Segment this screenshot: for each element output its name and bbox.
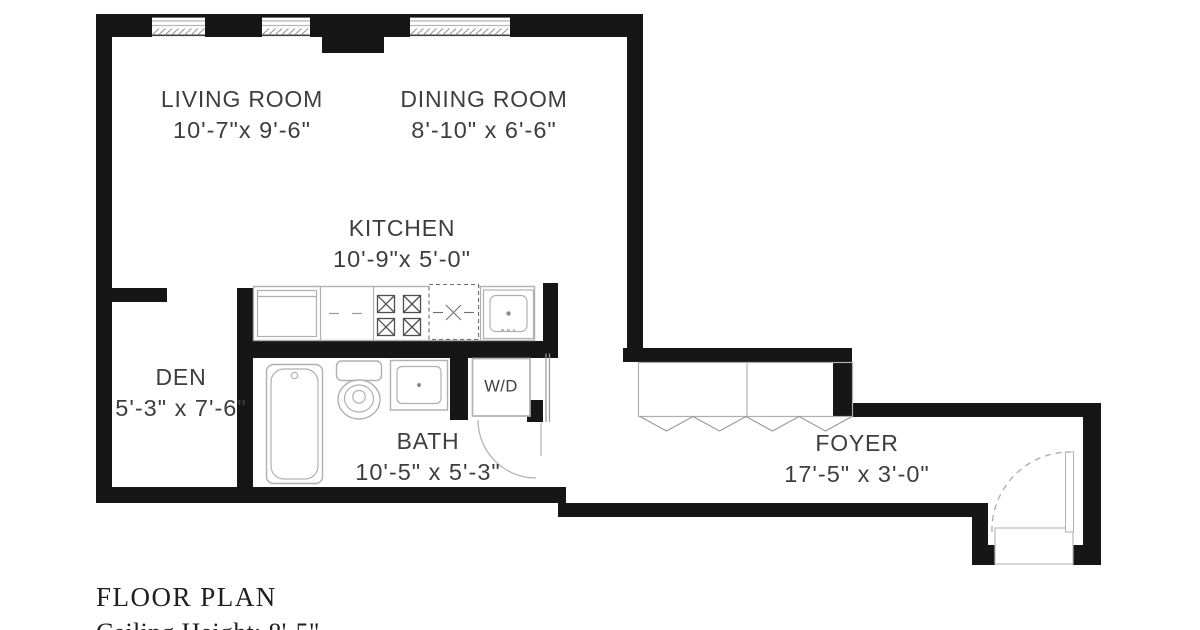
dishwasher xyxy=(429,285,479,340)
entry-door-leaf xyxy=(1066,452,1074,532)
entry-door-swing xyxy=(992,452,1070,532)
floor-plan-page: LIVING ROOM 10'-7"x 9'-6" DINING ROOM 8'… xyxy=(0,0,1200,630)
wall-bath-stub xyxy=(450,357,468,420)
room-name: DINING ROOM xyxy=(400,84,567,115)
closet xyxy=(639,363,853,432)
wall-kitchen-right xyxy=(543,283,558,358)
foyer-label: FOYER 17'-5" x 3'-0" xyxy=(784,428,929,490)
kitchen-label: KITCHEN 10'-9"x 5'-0" xyxy=(333,213,471,275)
window xyxy=(152,21,205,35)
room-dims: 17'-5" x 3'-0" xyxy=(784,459,929,490)
floor-plan-title: FLOOR PLAN xyxy=(96,582,320,613)
bathtub xyxy=(267,365,323,484)
wall-bottom-foyer xyxy=(558,503,988,517)
entry-door xyxy=(992,452,1074,564)
room-name: DEN xyxy=(115,362,246,393)
wall-top-2 xyxy=(205,14,262,37)
wall-bottom-right-a xyxy=(988,545,995,565)
wall-top-4 xyxy=(510,14,643,37)
window xyxy=(262,21,310,35)
kitchen-counter xyxy=(254,285,535,341)
room-name: BATH xyxy=(355,426,500,457)
wall-bottom-left xyxy=(96,487,566,503)
wall-top-3 xyxy=(310,14,410,37)
room-dims: 10'-7"x 9'-6" xyxy=(161,115,323,146)
window xyxy=(410,21,510,35)
room-dims: 5'-3" x 7'-6" xyxy=(115,393,246,424)
wall-right-upper xyxy=(627,14,643,362)
wall-foyer-upper-right xyxy=(852,403,1101,417)
room-name: LIVING ROOM xyxy=(161,84,323,115)
entry-door-landing xyxy=(995,528,1073,564)
footer: FLOOR PLAN Ceiling Height: 8'-5" xyxy=(96,582,320,630)
wall-bottom-step xyxy=(972,503,988,565)
wall-foyer-step xyxy=(833,348,852,417)
room-dims: 10'-9"x 5'-0" xyxy=(333,244,471,275)
ceiling-height-note: Ceiling Height: 8'-5" xyxy=(96,618,320,630)
washer-dryer-label: W/D xyxy=(484,378,518,397)
room-dims: 10'-5" x 5'-3" xyxy=(355,457,500,488)
wall-right-lower xyxy=(1083,417,1101,565)
bath-label: BATH 10'-5" x 5'-3" xyxy=(355,426,500,488)
bathroom-sink xyxy=(391,361,448,411)
wall-living-den-stub xyxy=(96,288,167,302)
room-dims: 8'-10" x 6'-6" xyxy=(400,115,567,146)
wall-left xyxy=(96,14,112,502)
room-name: FOYER xyxy=(784,428,929,459)
living-room-label: LIVING ROOM 10'-7"x 9'-6" xyxy=(161,84,323,146)
wall-bottom-right-b xyxy=(1073,545,1101,565)
wall-kitchen-bath xyxy=(237,341,558,358)
wall-column xyxy=(322,36,384,53)
dining-room-label: DINING ROOM 8'-10" x 6'-6" xyxy=(400,84,567,146)
wall-foyer-upper-left xyxy=(623,348,852,362)
den-label: DEN 5'-3" x 7'-6" xyxy=(115,362,246,424)
room-name: KITCHEN xyxy=(333,213,471,244)
toilet xyxy=(337,361,382,419)
